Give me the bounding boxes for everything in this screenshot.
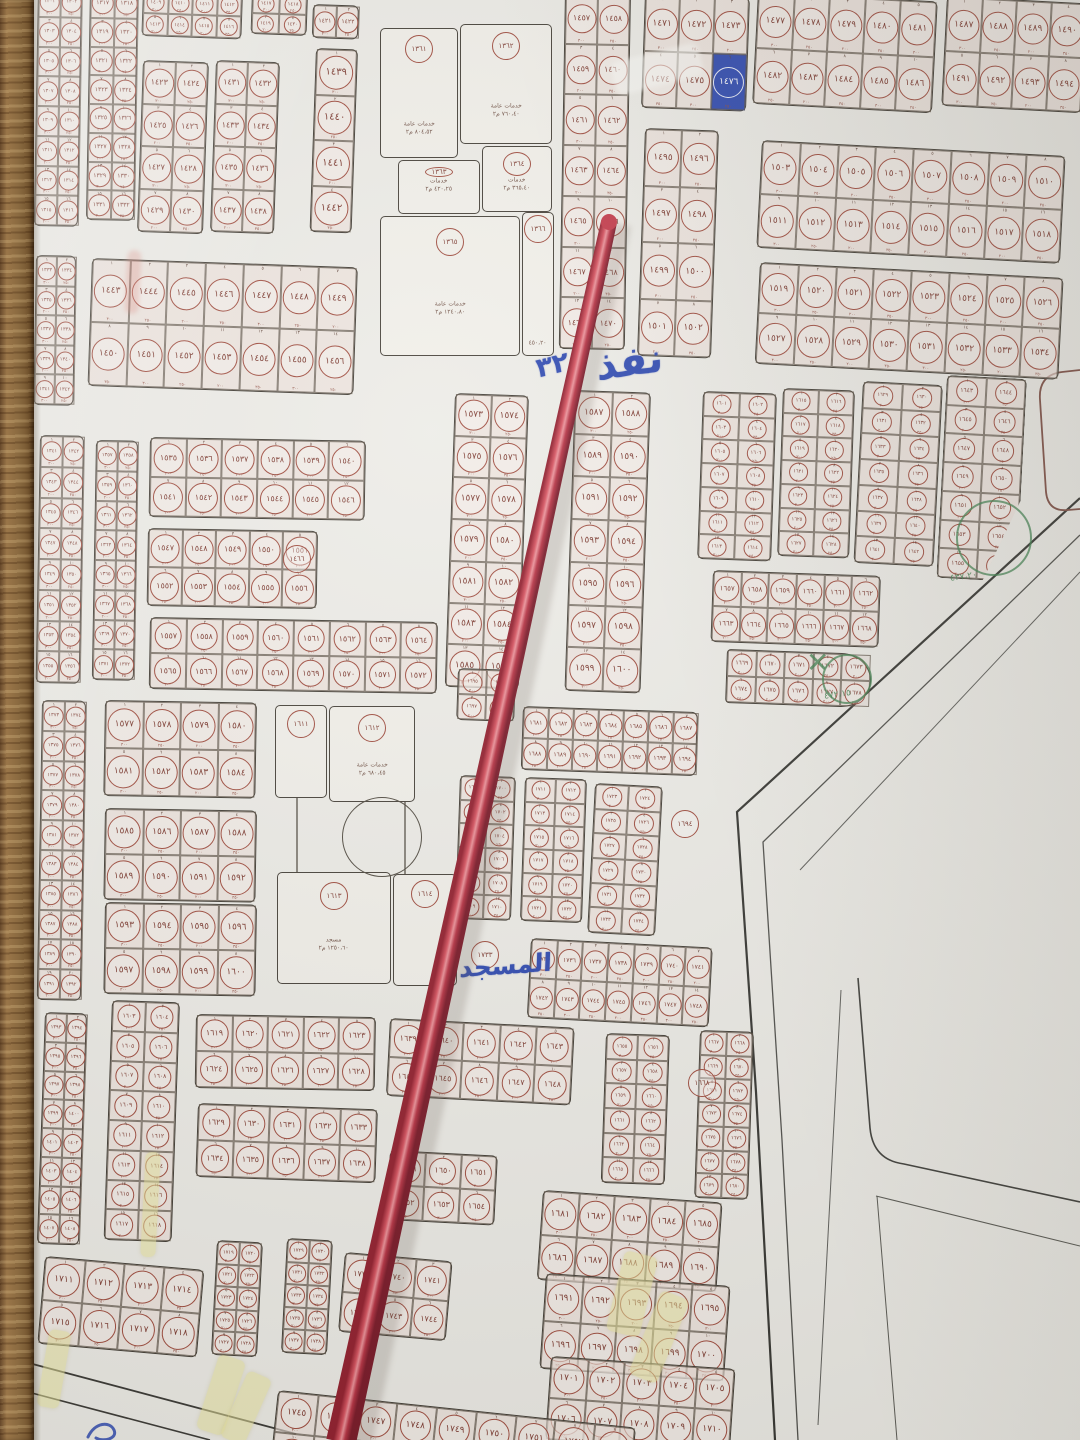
stick-body: [326, 220, 616, 1440]
pointer-stick: [0, 0, 1080, 1440]
wooden-wall: [0, 0, 34, 1440]
stick-cap: [601, 214, 617, 230]
map-photo: ١١٣٠١٣٠٠٢١٣٠٢٢٥٠٣١٣٠٣٢٠٠٤١٣٠٤٣٥٠٥١٣٠٥٣٠٠…: [0, 0, 1080, 1440]
